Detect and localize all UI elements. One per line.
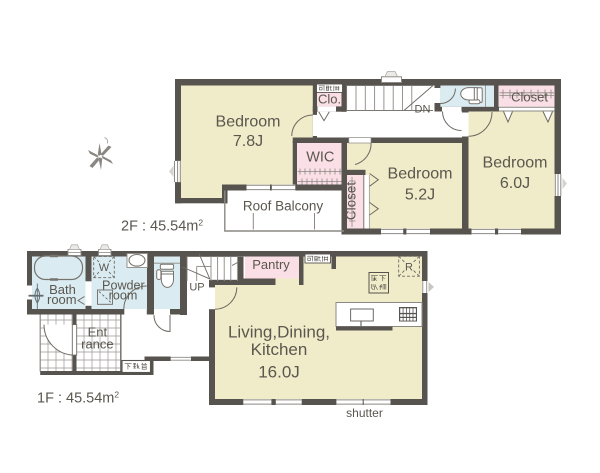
svg-text:Closet: Closet — [344, 182, 359, 221]
svg-text:1F : 45.54m2: 1F : 45.54m2 — [37, 390, 119, 407]
svg-text:7.8J: 7.8J — [233, 133, 263, 150]
svg-text:room: room — [47, 292, 77, 307]
svg-text:DN: DN — [415, 104, 431, 116]
svg-text:room: room — [109, 289, 138, 303]
svg-text:Kitchen: Kitchen — [251, 340, 308, 359]
svg-text:R: R — [405, 262, 413, 274]
svg-text:W: W — [99, 262, 110, 274]
svg-text:WIC: WIC — [306, 150, 334, 166]
svg-text:16.0J: 16.0J — [258, 363, 300, 382]
svg-text:shutter: shutter — [346, 406, 383, 420]
svg-text:rance: rance — [81, 336, 114, 351]
svg-text:Closet: Closet — [511, 89, 548, 104]
svg-text:UP: UP — [189, 282, 204, 294]
svg-text:Clo.: Clo. — [318, 92, 341, 107]
svg-text:2F : 45.54m2: 2F : 45.54m2 — [121, 217, 203, 234]
svg-text:Pantry: Pantry — [252, 257, 290, 272]
svg-text:Bedroom: Bedroom — [216, 113, 281, 130]
svg-text:5.2J: 5.2J — [405, 186, 435, 203]
svg-text:Roof Balcony: Roof Balcony — [243, 199, 324, 214]
svg-text:Bedroom: Bedroom — [388, 165, 453, 182]
svg-text:6.0J: 6.0J — [500, 175, 530, 192]
svg-text:Bedroom: Bedroom — [483, 155, 548, 172]
svg-text:Living,Dining,: Living,Dining, — [228, 323, 330, 342]
